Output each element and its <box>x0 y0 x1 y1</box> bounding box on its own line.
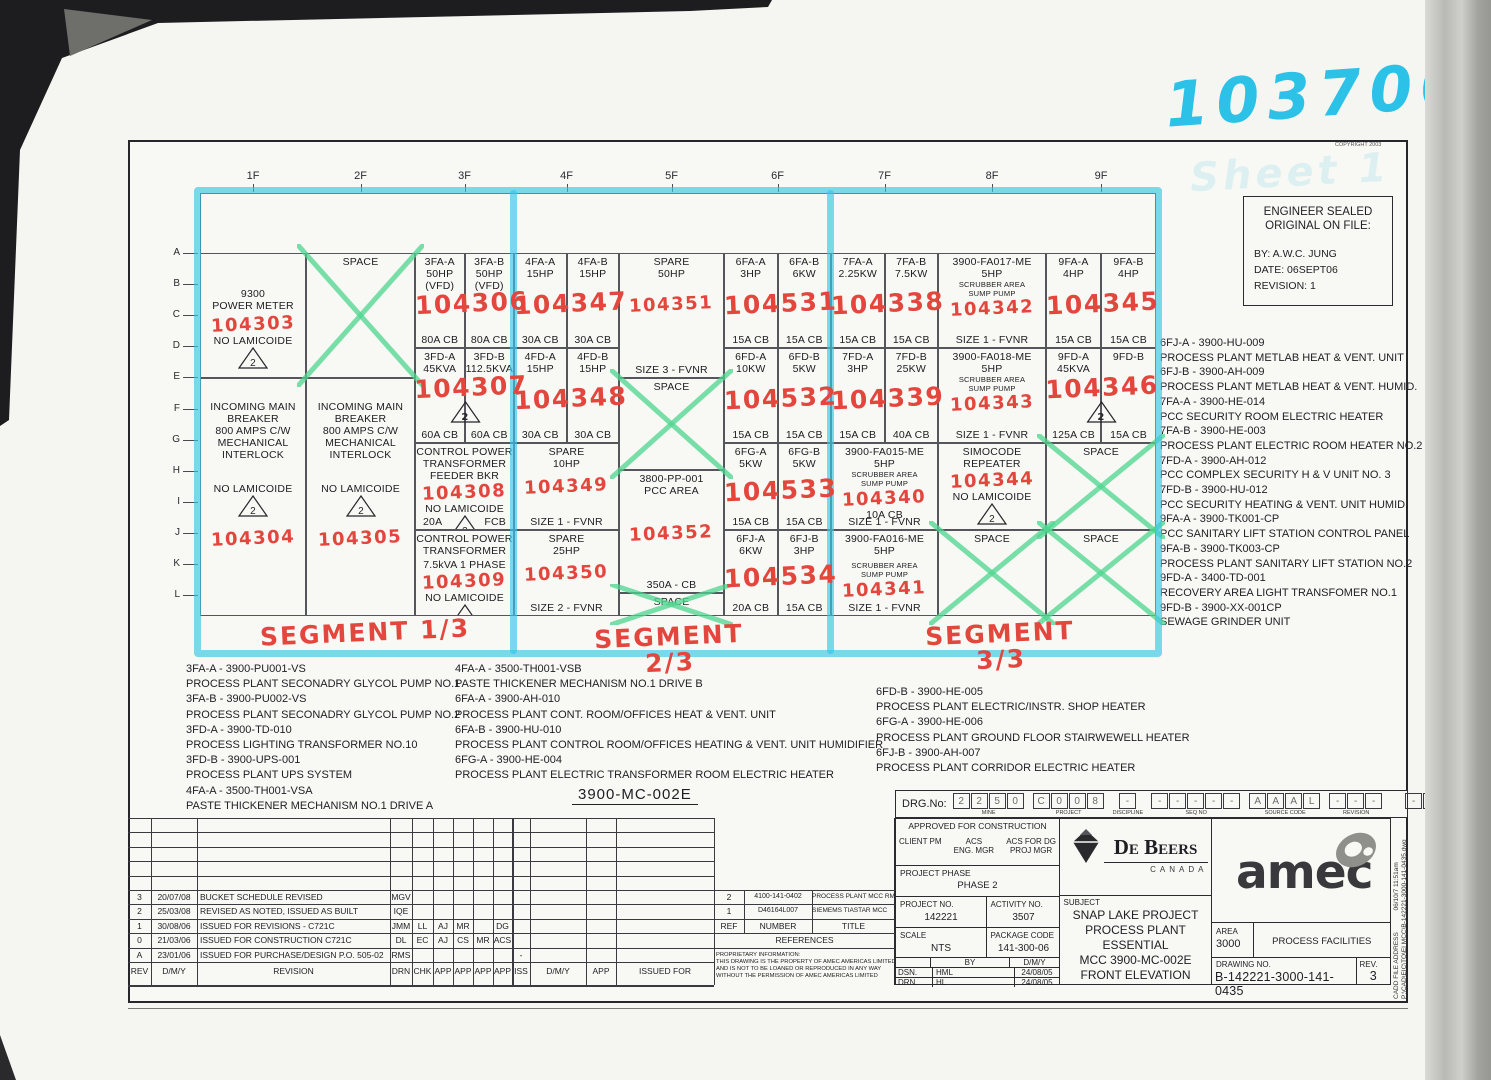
equipment-tag: 6FJ-B - 3900-AH-007 <box>876 746 1190 761</box>
cell-text: 7.5KW <box>895 268 928 280</box>
cell-text: 6FJ-A <box>736 533 765 545</box>
rev-date-cell: 21/03/06 <box>151 935 197 947</box>
sign-dmy-header: D/M/Y <box>1009 958 1059 967</box>
drawing-title: 3900-MC-002E <box>572 786 698 805</box>
seal-date: DATE: 06SEPT06 <box>1254 263 1392 277</box>
rev-header: APP <box>433 966 453 978</box>
cell-text: 5KW <box>739 458 762 470</box>
cell-4F-s3: SPARE10HP104349SIZE 1 - FVNR <box>514 443 619 530</box>
cell-breaker-label: 15A CB <box>832 429 884 441</box>
cell-breaker-label: 15A CB <box>1102 429 1155 441</box>
table-line <box>128 904 714 905</box>
table-line <box>128 818 714 819</box>
equipment-list-bottom-right: 6FD-B - 3900-HE-005PROCESS PLANT ELECTRI… <box>876 685 1190 776</box>
svg-text:2: 2 <box>250 506 256 517</box>
equipment-description: PROCESS PLANT CONT. ROOM/OFFICES HEAT & … <box>455 708 883 723</box>
cell-text: 7FD-B <box>896 351 927 363</box>
equipment-tag: 6FJ-B - 3900-AH-009 <box>1160 365 1422 380</box>
table-line <box>197 818 198 985</box>
cell-text: 9FD-B <box>1113 351 1144 363</box>
cell-text: SPARE <box>549 533 585 545</box>
cell-text: 6FG-B <box>788 446 820 458</box>
dsn-name: HML <box>932 968 1014 977</box>
cell-9F-B-s2: 9FD-B15A CB <box>1101 348 1156 443</box>
cell-text: TRANSFORMER <box>423 458 506 470</box>
approved-line: APPROVED FOR CONSTRUCTION <box>896 821 1059 831</box>
table-line <box>473 818 474 985</box>
cell-text: INTERLOCK <box>330 449 392 461</box>
drg-code-box: - <box>1365 793 1382 809</box>
cell-text: 3HP <box>847 363 868 375</box>
amec-swirl-icon <box>1330 827 1382 873</box>
cell-text: 2.25KW <box>838 268 877 280</box>
drg-code-box: 0 <box>1007 793 1024 809</box>
drg-code-box: 2 <box>953 793 970 809</box>
table-line <box>714 919 895 920</box>
cell-breaker-label: 15A CB <box>779 602 831 614</box>
subject-line: PROCESS PLANT <box>1060 923 1212 938</box>
drg-group-source-code: AAALSOURCE CODE <box>1249 793 1321 816</box>
drg-code-box: - <box>1347 793 1364 809</box>
drg-code-box: A <box>1285 793 1302 809</box>
handwritten-ref-number: 104344 <box>950 468 1035 493</box>
grid-row-label: J <box>166 527 180 539</box>
project-phase-value: PHASE 2 <box>896 880 1059 891</box>
cell-breaker-label: 15A CB <box>779 516 831 528</box>
proprietary-note: WITHOUT THE PERMISSION OF AMEC AMERICAS … <box>716 971 894 983</box>
rev-date-cell: 30/08/06 <box>151 921 197 933</box>
equipment-tag: 9FD-B - 3900-XX-001CP <box>1160 601 1422 616</box>
equipment-tag: 6FG-A - 3900-HE-006 <box>876 715 1190 730</box>
cell-text: SIMOCODE <box>963 446 1022 458</box>
facilities-value: PROCESS FACILITIES <box>1254 936 1391 947</box>
cell-breaker-label: 40A CB <box>886 429 938 441</box>
row-tick <box>183 564 198 565</box>
cell-breaker-label: 20AFCB <box>416 516 513 528</box>
equipment-tag: 7FD-B - 3900-HU-012 <box>1160 483 1422 498</box>
handwritten-ref-number: 104341 <box>842 577 927 602</box>
equipment-description: PASTE THICKENER MECHANISM NO.1 DRIVE A <box>186 799 460 814</box>
table-line <box>128 876 714 877</box>
drg-code-box: - <box>1329 793 1346 809</box>
grid-column-header: 8F <box>977 170 1007 184</box>
cell-text: SPACE <box>1083 533 1119 545</box>
equipment-description: PROCESS PLANT METLAB HEAT & VENT. HUMID. <box>1160 380 1422 395</box>
row-tick <box>183 595 198 596</box>
drg-code-box: A <box>1267 793 1284 809</box>
equipment-description: PROCESS PLANT SECONADRY GLYCOL PUMP NO.1 <box>186 677 460 692</box>
cell-7F-A-s1: 7FA-A2.25KW15A CB <box>831 253 885 348</box>
cell-breaker-label: SIZE 1 - FVNR <box>832 516 937 528</box>
drg-code-box: - <box>1187 793 1204 809</box>
table-line <box>128 832 714 833</box>
cell-text: NO LAMICOIDE <box>321 483 400 495</box>
table-line <box>128 890 714 891</box>
drawing-no-value: B-142221-3000-141-0435 <box>1215 970 1356 998</box>
grid-row-label: K <box>166 558 180 570</box>
scanned-drawing-page: 103700 Sheet 1 COPYRIGHT 2003 ENGINEER S… <box>0 0 1491 1080</box>
grid-row-label: L <box>166 589 180 601</box>
cell-text: 5HP <box>981 363 1002 375</box>
rev-header: CHK <box>412 966 433 978</box>
drg-code-box: 0 <box>1069 793 1086 809</box>
cell-text: 3800-PP-001 <box>639 473 703 485</box>
cell-text: 5HP <box>874 458 895 470</box>
facilities-box: PROCESS FACILITIES <box>1253 922 1392 959</box>
subject-line: MCC 3900-MC-002E <box>1060 953 1212 968</box>
ref-number-cell: 4100-141-0402 <box>744 892 812 904</box>
iss-mark: - <box>512 950 530 962</box>
area-label: AREA <box>1216 927 1253 936</box>
cell-text: 5HP <box>981 268 1002 280</box>
drg-code-box: - <box>1169 793 1186 809</box>
svg-text:2: 2 <box>989 514 995 525</box>
equipment-list-right: 6FJ-A - 3900-HU-009PROCESS PLANT METLAB … <box>1160 336 1422 630</box>
equipment-description: PASTE THICKENER MECHANISM NO.1 DRIVE B <box>455 677 883 692</box>
equipment-list-bottom-middle: 4FA-A - 3500-TH001-VSBPASTE THICKENER ME… <box>455 662 883 784</box>
drg-code-box: 5 <box>989 793 1006 809</box>
package-code-box: PACKAGE CODE 141-300-06 <box>986 927 1062 959</box>
table-line <box>453 818 454 985</box>
cell-breaker-label: SIZE 1 - FVNR <box>832 602 937 614</box>
debeers-diamond-icon <box>1066 827 1106 867</box>
equipment-tag: 3FD-A - 3900-TD-010 <box>186 723 460 738</box>
scale-box: SCALE NTS <box>895 927 987 959</box>
drg-code-box: - <box>1405 793 1422 809</box>
cell-text: NO LAMICOIDE <box>425 592 504 604</box>
seal-line: ENGINEER SEALED <box>1254 205 1392 219</box>
drg-group-label: PROJECT <box>1056 810 1082 816</box>
ref-title-cell: SIEMEMS TIASTAR MCC <box>812 906 895 918</box>
drg-group-label: SEQ NO <box>1186 810 1207 816</box>
cell-breaker-label-part: FCB <box>484 516 506 528</box>
table-line <box>128 861 714 862</box>
equipment-description: PROCESS PLANT METLAB HEAT & VENT. UNIT <box>1160 351 1422 366</box>
project-no-value: 142221 <box>896 912 986 923</box>
proj-mgr-label: PROJ MGR <box>1006 846 1056 855</box>
cell-text: 5KW <box>793 458 816 470</box>
drg-code-box: 2 <box>971 793 988 809</box>
equipment-tag: 7FA-A - 3900-HE-014 <box>1160 395 1422 410</box>
cell-6F-B-s3: 6FG-B5KW15A CB <box>778 443 832 530</box>
drn-label: DRN. <box>896 978 932 987</box>
project-no-label: PROJECT NO. <box>900 900 986 909</box>
copyright-note: COPYRIGHT 2003 <box>1335 142 1381 148</box>
equipment-tag: 4FA-A - 3500-TH001-VSA <box>186 784 460 799</box>
rev-desc-cell: ISSUED FOR REVISIONS - C721C <box>200 921 388 933</box>
drg-code-box: C <box>1033 793 1050 809</box>
equipment-description: RECOVERY AREA LIGHT TRANSFOMER NO.1 <box>1160 586 1422 601</box>
cell-text: 10HP <box>553 458 580 470</box>
iss-header: D/M/Y <box>530 966 586 978</box>
cell-text: CONTROL POWER <box>416 533 512 545</box>
table-line <box>714 933 895 934</box>
amec-logo-box: amec <box>1211 818 1391 923</box>
drg-group-label: DISCIPLINE <box>1113 810 1144 816</box>
revision-table: 320/07/08BUCKET SCHEDULE REVISEDMGV225/0… <box>128 818 895 985</box>
cell-text: 5HP <box>874 545 895 557</box>
cell-text: SPARE <box>549 446 585 458</box>
cell-breaker-label: SIZE 1 - FVNR <box>939 429 1045 441</box>
cell-text: INTERLOCK <box>222 449 284 461</box>
drawing-no-label: DRAWING NO. <box>1216 960 1356 969</box>
table-line <box>128 933 714 934</box>
table-line <box>714 948 895 949</box>
drg-code-box: - <box>1223 793 1240 809</box>
drg-group-label: SOURCE CODE <box>1265 810 1306 816</box>
table-line <box>530 818 531 985</box>
rev-sign-cell: IQE <box>390 906 412 918</box>
rev-cell: 2 <box>128 906 151 918</box>
rev-header: APP <box>453 966 473 978</box>
cell-text: NO LAMICOIDE <box>425 503 504 515</box>
area-box: AREA 3000 <box>1211 922 1254 959</box>
area-value: 3000 <box>1216 938 1253 950</box>
drg-group-revision: ---REVISION <box>1329 793 1383 816</box>
cell-text: NO LAMICOIDE <box>953 491 1032 503</box>
cadd-label: CADD FILE ADDRESS <box>1393 932 1400 999</box>
rev-header: APP <box>473 966 493 978</box>
cell-text: 3900-FA015-ME <box>845 446 924 458</box>
equipment-description: PROCESS LIGHTING TRANSFORMER NO.10 <box>186 738 460 753</box>
rev-date-cell: 20/07/08 <box>151 892 197 904</box>
engineer-seal-box: ENGINEER SEALED ORIGINAL ON FILE: BY: A.… <box>1243 196 1393 306</box>
equipment-description: PROCESS PLANT CONTROL ROOM/OFFICES HEATI… <box>455 738 883 753</box>
cell-text: 7FD-A <box>842 351 873 363</box>
rev-sign-cell: DG <box>493 921 512 933</box>
cell-breaker-label: 15A CB <box>1102 334 1155 346</box>
rev-desc-cell: BUCKET SCHEDULE REVISED <box>200 892 388 904</box>
equipment-tag: 6FD-B - 3900-HE-005 <box>876 685 1190 700</box>
handwritten-ref-number: 104304 <box>211 526 296 551</box>
cell-7F-s4: 3900-FA016-ME5HPSCRUBBER AREASUMP PUMP10… <box>831 530 938 616</box>
equipment-description: PROCESS PLANT GROUND FLOOR STAIRWEWELL H… <box>876 731 1190 746</box>
triangle-2-note-icon: 2 <box>346 495 376 518</box>
handwritten-ref-number: 104350 <box>524 561 609 586</box>
equipment-description: PCC COMPLEX SECURITY H & V UNIT NO. 3 <box>1160 468 1422 483</box>
cell-5F-s4: SPACE <box>619 593 724 616</box>
cell-6F-A-s4: 6FJ-A6KW20A CB <box>724 530 778 616</box>
cell-text: 4HP <box>1063 268 1084 280</box>
cell-8F-s4: SPACE <box>938 530 1046 616</box>
iss-header: ISSUED FOR <box>616 966 714 978</box>
cell-text: 25HP <box>553 545 580 557</box>
subject-box: SUBJECT SNAP LAKE PROJECT PROCESS PLANT … <box>1059 895 1213 986</box>
handwritten-ref-number: 104340 <box>842 486 927 511</box>
handwritten-ref-number: 104343 <box>950 391 1035 416</box>
ref-title-cell: PROCESS PLANT MCC RM EQUIP. I/O <box>812 892 895 904</box>
rev-value: 3 <box>1357 969 1391 983</box>
cell-breaker-label: 15A CB <box>886 334 938 346</box>
rev-header: REVISION <box>197 966 390 978</box>
drg-code-box: - <box>1119 793 1136 809</box>
drg-code-box: L <box>1303 793 1320 809</box>
cell-7F-A-s2: 7FD-A3HP15A CB <box>831 348 885 443</box>
rev-sign-cell: ACS <box>493 935 512 947</box>
titleblock-phase: PROJECT PHASE PHASE 2 <box>895 865 1060 898</box>
cell-4F-s4: SPARE25HP104350SIZE 2 - FVNR <box>514 530 619 616</box>
drg-number-strip: DRG.No: 2250MINEC008PROJECT-DISCIPLINE--… <box>895 790 1408 818</box>
rev-cell: 1 <box>128 921 151 933</box>
seal-line: ORIGINAL ON FILE: <box>1254 219 1392 233</box>
cell-breaker-label: 15A CB <box>832 334 884 346</box>
row-tick <box>183 533 198 534</box>
equipment-description: PROCESS PLANT ELECTRIC TRANSFORMER ROOM … <box>455 768 883 783</box>
rev-sign-cell: JMM <box>390 921 412 933</box>
cell-breaker-label: SIZE 1 - FVNR <box>939 334 1045 346</box>
rev-desc-cell: ISSUED FOR CONSTRUCTION C721C <box>200 935 388 947</box>
rev-sign-cell: EC <box>412 935 433 947</box>
cell-breaker-label: SIZE 1 - FVNR <box>515 516 618 528</box>
cadd-file-address: CADD FILE ADDRESS 06/10/7 11:51am P:\CAD… <box>1393 747 1409 999</box>
rev-sign-cell: CS <box>453 935 473 947</box>
grid-row-label: H <box>166 465 180 477</box>
cell-text: 7FA-A <box>843 256 873 268</box>
row-tick <box>183 502 198 503</box>
rev-label: REV. <box>1360 960 1391 969</box>
drg-code-box: - <box>1151 793 1168 809</box>
table-line <box>128 985 714 987</box>
scan-corner-bottom-left <box>0 1035 22 1080</box>
rev-cell: 3 <box>128 892 151 904</box>
equipment-list-bottom-left: 3FA-A - 3900-PU001-VSPROCESS PLANT SECON… <box>186 662 460 814</box>
ref-cell: 2 <box>714 892 744 904</box>
activity-no-value: 3507 <box>987 912 1061 923</box>
cell-7F-B-s2: 7FD-B25KW40A CB <box>885 348 939 443</box>
cell-text: 25KW <box>897 363 926 375</box>
drg-group-seq-no: -----SEQ NO <box>1151 793 1241 816</box>
references-caption: REFERENCES <box>714 935 895 947</box>
cell-6F-B-s4: 6FJ-B3HP15A CB <box>778 530 832 616</box>
triangle-2-note-icon: 2 <box>977 503 1007 526</box>
cell-text: 6KW <box>739 545 762 557</box>
cell-breaker-label-part: 20A <box>423 516 442 528</box>
table-line <box>714 904 895 905</box>
cell-5F-s3: 3800-PP-001PCC AREA104352350A - CB <box>619 470 724 593</box>
equipment-description: PROCESS PLANT ELECTRIC ROOM HEATER NO.2 <box>1160 439 1422 454</box>
cell-text: 3900-FA016-ME <box>845 533 924 545</box>
sign-table: BY D/M/Y DSN. HML 24/08/05 DRN. HL 24/08… <box>895 957 1060 985</box>
subject-label: SUBJECT <box>1064 898 1212 907</box>
cell-6F-A-s3: 6FG-A5KW15A CB <box>724 443 778 530</box>
table-line <box>493 818 494 985</box>
rev-sign-cell: MR <box>473 935 493 947</box>
titleblock-approved: APPROVED FOR CONSTRUCTION CLIENT PM ACS … <box>895 818 1060 866</box>
cell-9F-B-s1: 9FA-B4HP15A CB <box>1101 253 1156 348</box>
scan-page-edge-right <box>1425 0 1491 1080</box>
segment-label-2: SEGMENT 2/3 <box>571 620 768 680</box>
seal-by: BY: A.W.C. JUNG <box>1254 247 1392 261</box>
rev-sign-cell: LL <box>412 921 433 933</box>
handwritten-ref-number: 104342 <box>950 296 1035 321</box>
drg-group-label: MINE <box>982 810 996 816</box>
rev-sign-cell: MR <box>453 921 473 933</box>
cell-subtext: SCRUBBER AREA <box>851 470 917 479</box>
column-tick <box>1101 184 1102 192</box>
cell-9F-s3: SPACE <box>1046 443 1156 530</box>
rev-sign-cell: MGV <box>390 892 412 904</box>
ref-header: TITLE <box>812 921 895 933</box>
cell-breaker-label: 15A CB <box>725 516 777 528</box>
cell-8F-s1: 3900-FA017-ME5HPSCRUBBER AREASUMP PUMP10… <box>938 253 1046 348</box>
subject-line: SNAP LAKE PROJECT <box>1060 908 1212 923</box>
ref-header: REF <box>714 921 744 933</box>
cell-breaker-label: 15A CB <box>1047 334 1100 346</box>
debeers-name: De Beers <box>1104 835 1208 863</box>
handwritten-ref-number: 104308 <box>422 480 507 505</box>
cell-8F-s2: 3900-FA018-ME5HPSCRUBBER AREASUMP PUMP10… <box>938 348 1046 443</box>
cell-text: 3900-FA017-ME <box>952 256 1031 268</box>
cell-text: 6FG-A <box>735 446 767 458</box>
drg-code-box: 8 <box>1087 793 1104 809</box>
drg-group-project: C008PROJECT <box>1033 793 1105 816</box>
table-line <box>128 948 714 949</box>
table-line <box>412 818 413 985</box>
cell-text: PCC AREA <box>644 485 699 497</box>
rev-date-cell: 25/03/08 <box>151 906 197 918</box>
cell-text: 6FJ-B <box>790 533 819 545</box>
dsn-label: DSN. <box>896 968 932 977</box>
scale-value: NTS <box>896 943 986 954</box>
subject-line: ESSENTIAL <box>1060 938 1212 953</box>
rev-box: REV. 3 <box>1356 957 1392 985</box>
cell-text: NO LAMICOIDE <box>214 483 293 495</box>
cadd-path: P:\CAD\EIC\TO\EI MCC\B-142221-3000-141-0… <box>1401 747 1409 999</box>
equipment-tag: 3FA-A - 3900-PU001-VS <box>186 662 460 677</box>
drg-code-box: 0 <box>1051 793 1068 809</box>
cell-breaker-label: SIZE 2 - FVNR <box>515 602 618 614</box>
equipment-tag: 7FA-B - 3900-HE-003 <box>1160 424 1422 439</box>
cell-subtext: SCRUBBER AREA <box>959 280 1025 289</box>
debeers-logo-box: De Beers CANADA <box>1059 818 1213 896</box>
cell-text: 9FA-A <box>1058 256 1088 268</box>
equipment-tag: 3FD-B - 3900-UPS-001 <box>186 753 460 768</box>
grid-column-header: 9F <box>1086 170 1116 184</box>
package-code-value: 141-300-06 <box>987 943 1061 954</box>
equipment-description: PCC SECURITY ROOM ELECTRIC HEATER <box>1160 410 1422 425</box>
equipment-tag: 6FA-B - 3900-HU-010 <box>455 723 883 738</box>
drg-code-box: - <box>1205 793 1222 809</box>
equipment-description: PROCESS PLANT SANITARY LIFT STATION NO.2 <box>1160 557 1422 572</box>
table-line <box>128 847 714 848</box>
segment-label-3: SEGMENT 3/3 <box>897 617 1104 678</box>
rev-header: APP <box>493 966 512 978</box>
cell-subtext: SCRUBBER AREA <box>851 561 917 570</box>
column-tick <box>885 184 886 192</box>
equipment-tag: 7FD-A - 3900-AH-012 <box>1160 454 1422 469</box>
equipment-description: PROCESS PLANT SECONADRY GLYCOL PUMP NO.2 <box>186 708 460 723</box>
handwritten-ref-number: 104309 <box>422 569 507 594</box>
rev-sign-cell: DL <box>390 935 412 947</box>
cell-text: 3900-FA018-ME <box>952 351 1031 363</box>
equipment-tag: 6FJ-A - 3900-HU-009 <box>1160 336 1422 351</box>
equipment-tag: 6FA-A - 3900-AH-010 <box>455 692 883 707</box>
drg-label: DRG.No: <box>902 798 947 810</box>
cell-9F-A-s1: 9FA-A4HP15A CB <box>1046 253 1101 348</box>
client-pm-label: CLIENT PM <box>899 837 942 855</box>
rev-sign-cell: AJ <box>433 921 453 933</box>
rev-header: REV <box>128 966 151 978</box>
rev-sign-cell: AJ <box>433 935 453 947</box>
cell-breaker-label: 20A CB <box>725 602 777 614</box>
table-line <box>128 919 714 920</box>
cell-text: 45KVA <box>1057 363 1090 375</box>
row-tick <box>183 471 198 472</box>
table-line <box>586 818 587 985</box>
cell-7F-s3: 3900-FA015-ME5HPSCRUBBER AREASUMP PUMP10… <box>831 443 938 530</box>
drn-name: HL <box>932 978 1014 987</box>
grid-row-label: I <box>166 496 180 508</box>
